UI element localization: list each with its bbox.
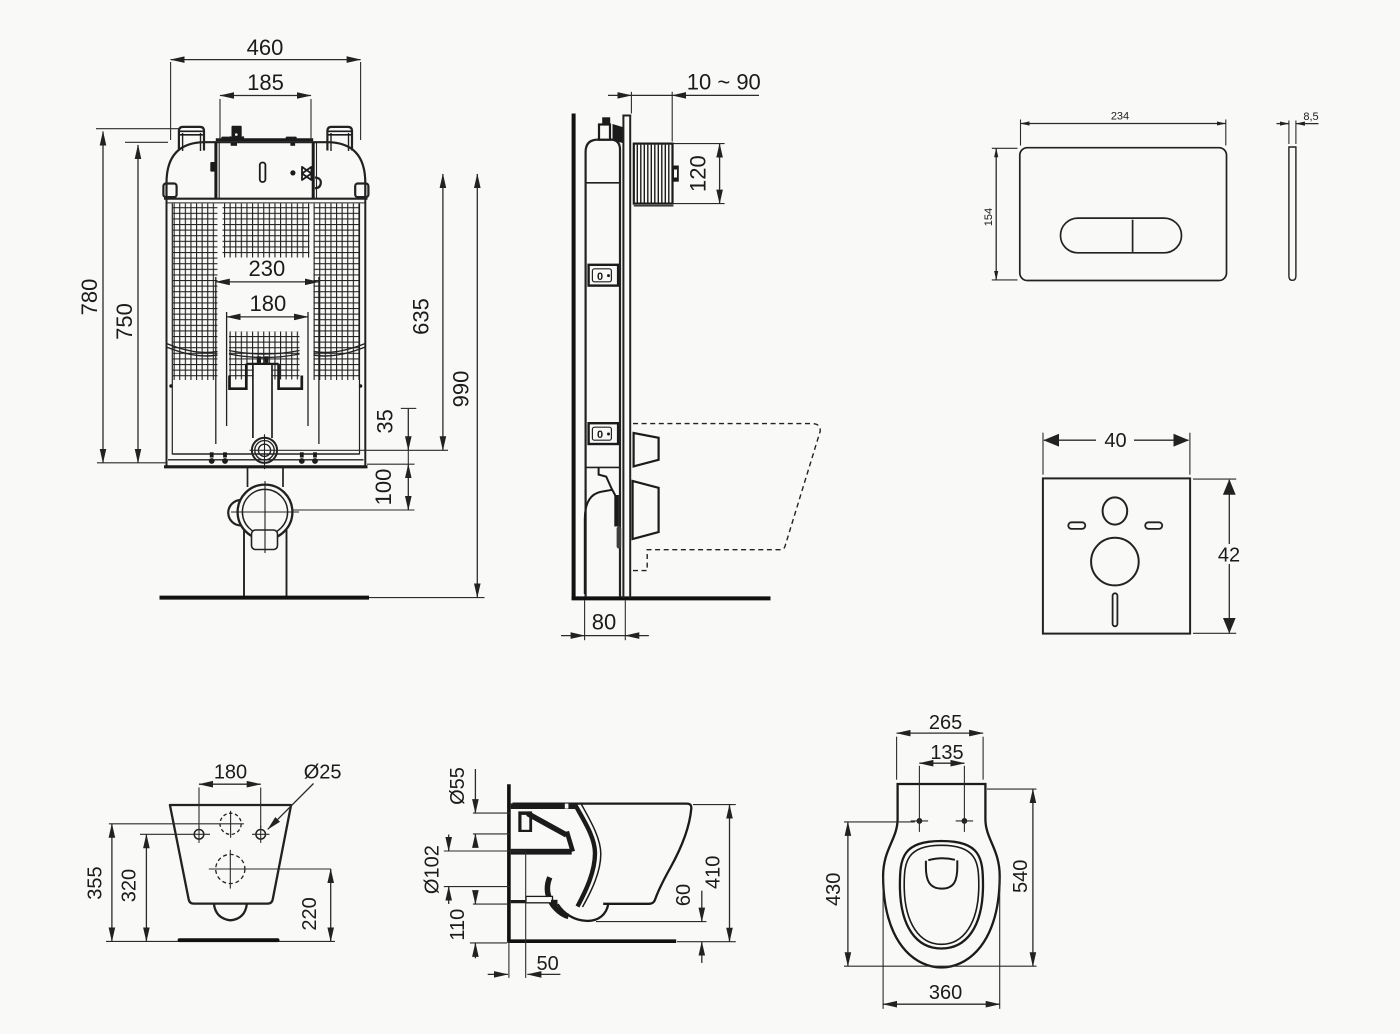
svg-text:180: 180 (214, 762, 247, 784)
svg-text:460: 460 (247, 35, 284, 60)
svg-text:10 ~ 90: 10 ~ 90 (687, 69, 761, 94)
svg-text:185: 185 (247, 70, 284, 95)
svg-text:540: 540 (1010, 860, 1032, 893)
svg-text:60: 60 (673, 884, 695, 906)
svg-text:154: 154 (983, 208, 995, 226)
svg-text:430: 430 (823, 873, 845, 906)
svg-text:360: 360 (929, 982, 962, 1004)
svg-text:180: 180 (250, 291, 287, 316)
svg-text:780: 780 (77, 279, 102, 316)
svg-text:100: 100 (371, 469, 396, 506)
svg-text:Ø55: Ø55 (447, 767, 469, 805)
svg-text:110: 110 (447, 909, 469, 941)
svg-text:234: 234 (1111, 111, 1129, 123)
svg-text:990: 990 (449, 371, 474, 408)
svg-text:135: 135 (930, 742, 963, 764)
svg-text:40: 40 (1104, 430, 1126, 452)
svg-text:635: 635 (408, 298, 433, 335)
svg-text:42: 42 (1218, 544, 1240, 566)
svg-text:35: 35 (373, 409, 398, 433)
svg-text:8,5: 8,5 (1303, 111, 1318, 123)
svg-text:80: 80 (592, 610, 616, 635)
svg-text:0: 0 (597, 271, 603, 283)
svg-text:120: 120 (685, 155, 710, 192)
svg-text:0: 0 (597, 429, 603, 441)
svg-text:265: 265 (929, 712, 962, 734)
svg-text:230: 230 (249, 256, 286, 281)
svg-text:410: 410 (703, 856, 725, 889)
svg-text:320: 320 (119, 869, 141, 902)
svg-text:Ø25: Ø25 (304, 762, 342, 784)
svg-text:220: 220 (299, 897, 321, 930)
svg-text:750: 750 (112, 303, 137, 340)
svg-text:355: 355 (85, 866, 107, 899)
svg-text:50: 50 (536, 953, 558, 975)
svg-text:Ø102: Ø102 (422, 845, 444, 894)
